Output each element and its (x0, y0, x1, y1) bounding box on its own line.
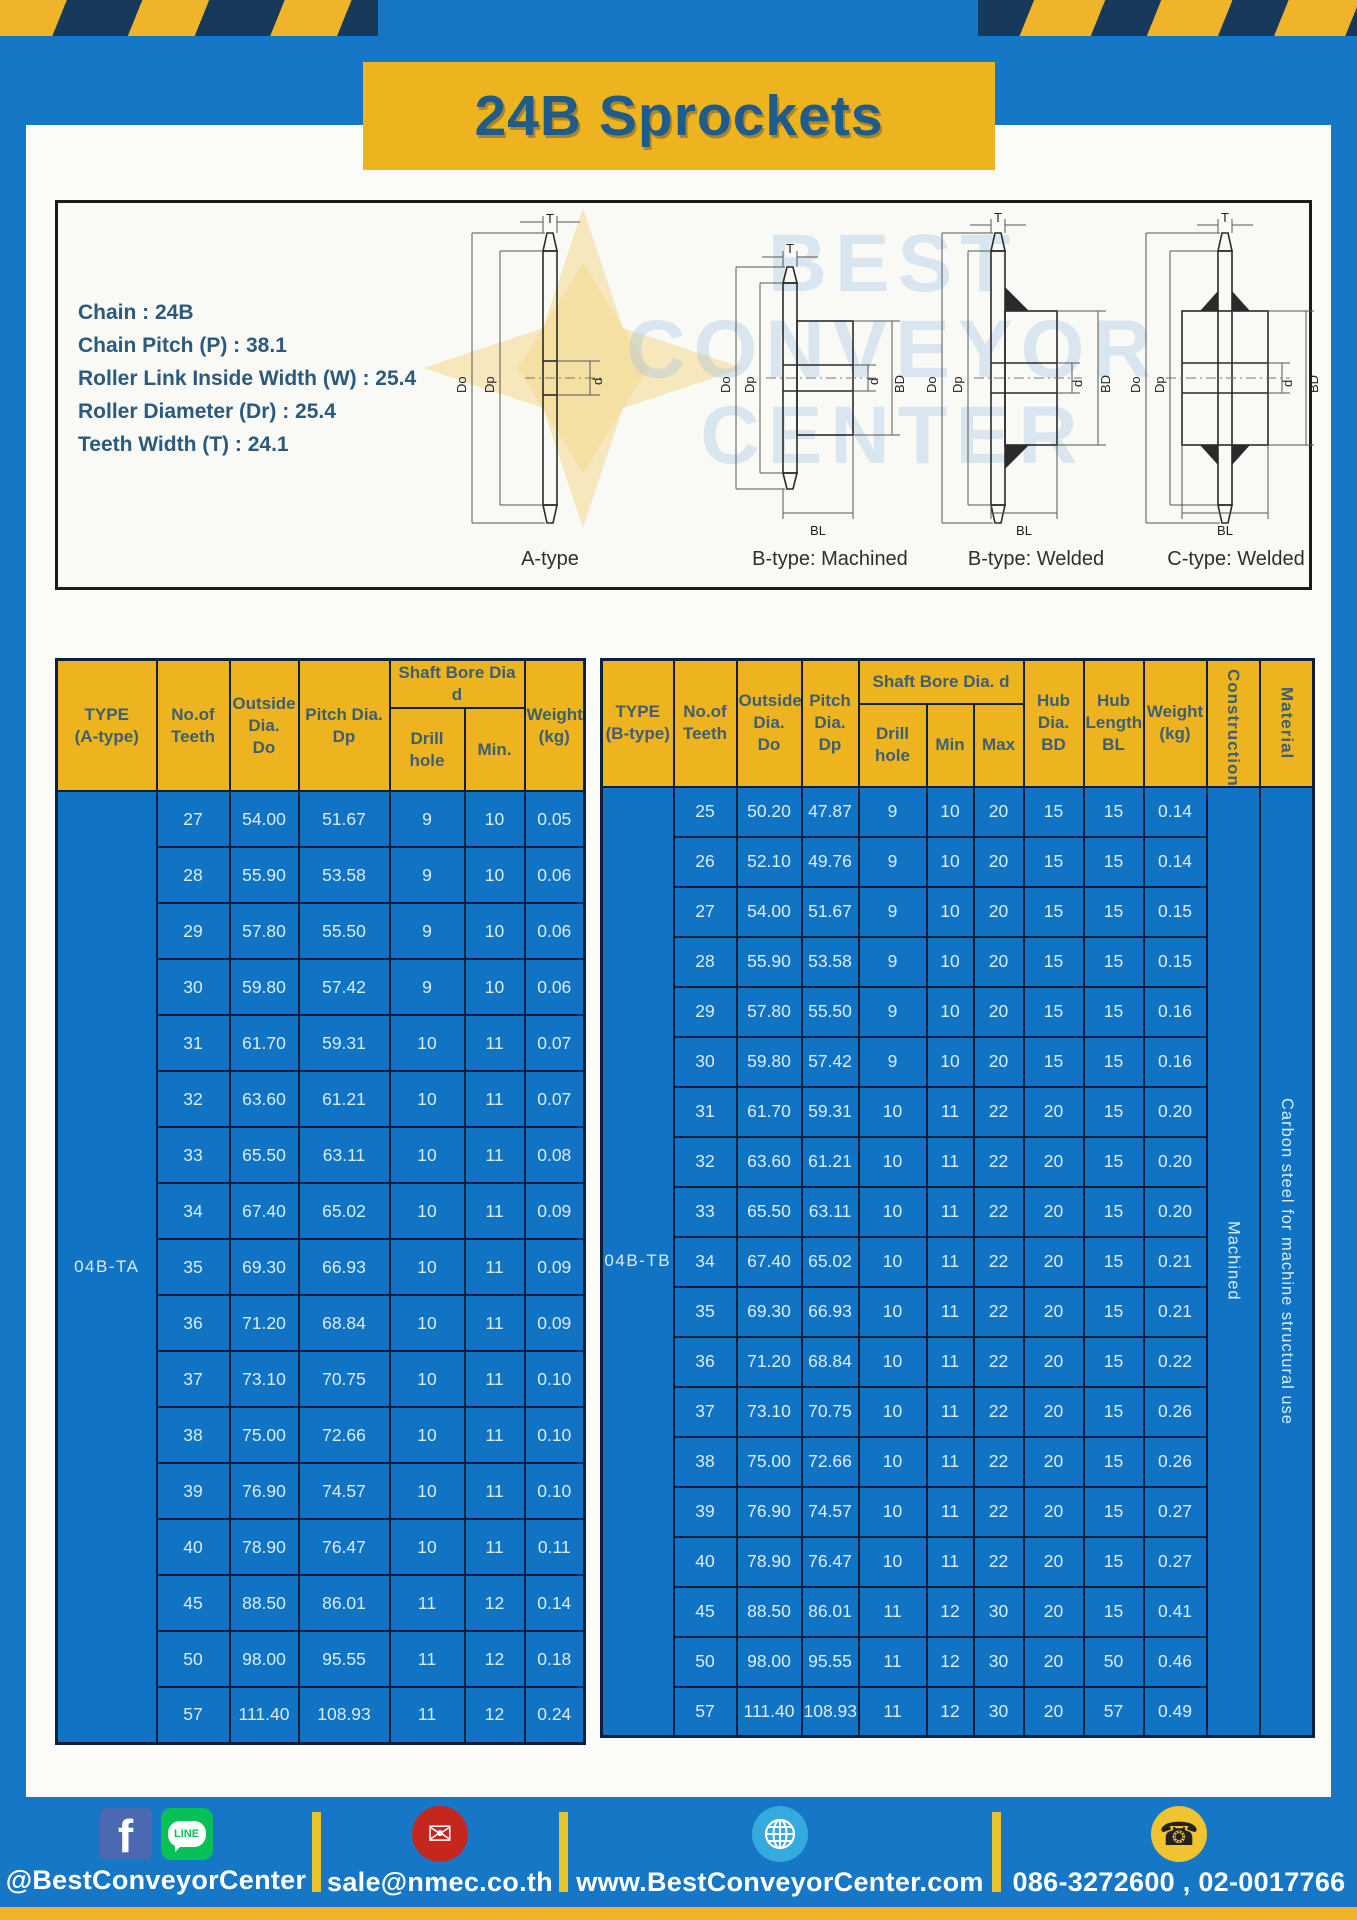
footer-divider (559, 1812, 568, 1892)
table-cell: 45 (674, 1587, 737, 1637)
table-cell: 12 (465, 1631, 525, 1687)
table-cell: 28 (674, 937, 737, 987)
table-cell: 15 (1024, 937, 1084, 987)
table-cell: 0.18 (525, 1631, 585, 1687)
table-cell: 38 (157, 1407, 230, 1463)
table-cell: 67.40 (230, 1183, 299, 1239)
table-cell: 12 (927, 1587, 974, 1637)
table-cell: 0.06 (525, 847, 585, 903)
table-cell: 25 (674, 787, 737, 837)
table-cell: 11 (927, 1387, 974, 1437)
table-cell: 57.80 (230, 903, 299, 959)
table-cell: 0.16 (1144, 987, 1207, 1037)
footer-website: www.BestConveyorCenter.com (568, 1806, 992, 1898)
table-cell: 57.80 (737, 987, 802, 1037)
table-cell: 11 (465, 1295, 525, 1351)
catalog-page: 24B Sprockets BEST CONVEYOR CENTER Chain… (0, 0, 1357, 1920)
table-cell: 50.20 (737, 787, 802, 837)
table-cell: 22 (974, 1437, 1024, 1487)
table-cell: 61.70 (230, 1015, 299, 1071)
table-cell: 0.16 (1144, 1037, 1207, 1087)
svg-text:Dp: Dp (742, 376, 757, 393)
table-cell: 0.20 (1144, 1087, 1207, 1137)
table-cell: 9 (859, 887, 927, 937)
col-header-type: TYPE (A-type) (57, 660, 157, 792)
table-cell: 71.20 (230, 1295, 299, 1351)
table-cell: 55.90 (230, 847, 299, 903)
table-cell: 9 (859, 837, 927, 887)
table-cell: 30 (974, 1687, 1024, 1737)
table-cell: 63.11 (299, 1127, 390, 1183)
caption-b-machined: B-type: Machined (720, 548, 940, 571)
table-cell: 0.21 (1144, 1237, 1207, 1287)
table-cell: 63.60 (230, 1071, 299, 1127)
table-cell: 11 (859, 1637, 927, 1687)
table-cell: 10 (859, 1287, 927, 1337)
table-cell: 75.00 (737, 1437, 802, 1487)
table-cell: 10 (927, 887, 974, 937)
table-cell: 20 (1024, 1487, 1084, 1537)
table-cell: 12 (927, 1637, 974, 1687)
table-cell: 10 (465, 847, 525, 903)
table-cell: 15 (1084, 1287, 1144, 1337)
svg-text:Dp: Dp (482, 376, 497, 393)
phone-icon: ☎ (1151, 1806, 1207, 1862)
table-cell: 11 (390, 1575, 465, 1631)
table-cell: 54.00 (737, 887, 802, 937)
svg-text:T: T (786, 241, 794, 256)
table-cell: 15 (1084, 1237, 1144, 1287)
table-cell: 78.90 (230, 1519, 299, 1575)
sprocket-drawing-b-welded: T Do Dp d BD (926, 213, 1126, 553)
col-header-construction: Construction (1207, 660, 1260, 787)
table-cell: 10 (390, 1071, 465, 1127)
table-cell: 27 (157, 791, 230, 847)
table-cell: 0.49 (1144, 1687, 1207, 1737)
table-cell: 0.06 (525, 903, 585, 959)
table-cell: 72.66 (299, 1407, 390, 1463)
table-cell: 0.22 (1144, 1337, 1207, 1387)
table-cell: 12 (465, 1687, 525, 1743)
svg-text:Do: Do (926, 376, 939, 393)
sprocket-drawing-b-machined: T Do Dp d BD (718, 213, 918, 553)
table-cell: 30 (974, 1587, 1024, 1637)
table-cell: 22 (974, 1487, 1024, 1537)
table-cell: 0.15 (1144, 887, 1207, 937)
col-header-type: TYPE (B-type) (602, 660, 674, 787)
table-cell: 10 (390, 1127, 465, 1183)
table-cell: 55.90 (737, 937, 802, 987)
hazard-stripes-left (0, 0, 378, 36)
table-cell: 11 (859, 1687, 927, 1737)
table-cell: 10 (927, 837, 974, 887)
table-cell: 71.20 (737, 1337, 802, 1387)
table-cell: 20 (974, 887, 1024, 937)
table-cell: 10 (465, 791, 525, 847)
table-cell: 15 (1084, 1537, 1144, 1587)
table-cell: 15 (1084, 1387, 1144, 1437)
table-cell: 31 (674, 1087, 737, 1137)
svg-text:T: T (994, 213, 1002, 225)
spec-teeth-width: Teeth Width (T) : 24.1 (78, 428, 416, 461)
table-cell: 15 (1084, 1487, 1144, 1537)
col-header-min: Min (927, 704, 974, 787)
table-cell: 11 (465, 1183, 525, 1239)
table-cell: 74.57 (802, 1487, 859, 1537)
table-cell: 68.84 (299, 1295, 390, 1351)
table-cell: 36 (157, 1295, 230, 1351)
table-cell: 65.02 (299, 1183, 390, 1239)
footer-social: f LINE @BestConveyorCenter (0, 1808, 312, 1896)
col-header-drill-hole: Drill hole (390, 708, 465, 791)
sprocket-drawing-c-welded: T Do Dp d (1130, 213, 1330, 553)
table-cell: 22 (974, 1337, 1024, 1387)
table-cell: 10 (465, 903, 525, 959)
table-cell: 108.93 (802, 1687, 859, 1737)
table-cell: 11 (390, 1631, 465, 1687)
table-cell: 11 (465, 1127, 525, 1183)
title-banner: 24B Sprockets (363, 62, 995, 170)
col-header-outside-dia: Outside Dia. Do (230, 660, 299, 792)
table-cell: 0.06 (525, 959, 585, 1015)
table-cell: 66.93 (299, 1239, 390, 1295)
caption-c-welded: C-type: Welded (1126, 548, 1346, 571)
table-b-body: 04B-TB2550.2047.879102015150.14MachinedC… (602, 787, 1314, 1737)
footer-phone: ☎ 086-3272600 , 02-0017766 (1001, 1806, 1357, 1898)
svg-text:T: T (546, 213, 554, 226)
table-cell: 11 (927, 1337, 974, 1387)
table-cell: 65.50 (737, 1187, 802, 1237)
facebook-icon: f (100, 1808, 152, 1860)
table-cell: 15 (1024, 887, 1084, 937)
table-cell: 20 (1024, 1587, 1084, 1637)
table-cell: 95.55 (802, 1637, 859, 1687)
col-header-min: Min. (465, 708, 525, 791)
table-cell: 11 (465, 1071, 525, 1127)
svg-text:BD: BD (1306, 375, 1321, 393)
table-cell: 22 (974, 1387, 1024, 1437)
table-cell: 32 (674, 1137, 737, 1187)
table-cell: 55.50 (299, 903, 390, 959)
table-cell: 20 (1024, 1437, 1084, 1487)
table-cell: 30 (674, 1037, 737, 1087)
table-cell: 35 (157, 1239, 230, 1295)
col-header-shaft-bore: Shaft Bore Dia. d (859, 660, 1024, 704)
table-cell: 57 (157, 1687, 230, 1743)
table-cell: 0.14 (525, 1575, 585, 1631)
table-cell: 74.57 (299, 1463, 390, 1519)
table-cell: 51.67 (802, 887, 859, 937)
table-cell: 34 (157, 1183, 230, 1239)
table-cell: 10 (859, 1437, 927, 1487)
table-cell: 63.11 (802, 1187, 859, 1237)
table-cell: 61.21 (802, 1137, 859, 1187)
table-a-type: TYPE (A-type) No.of Teeth Outside Dia. D… (55, 658, 586, 1745)
type-label-a: 04B-TA (57, 791, 157, 1743)
table-cell: 10 (859, 1387, 927, 1437)
table-cell: 9 (390, 847, 465, 903)
table-cell: 36 (674, 1337, 737, 1387)
table-cell: 20 (974, 787, 1024, 837)
table-cell: 22 (974, 1087, 1024, 1137)
table-cell: 12 (465, 1575, 525, 1631)
table-cell: 108.93 (299, 1687, 390, 1743)
table-cell: 72.66 (802, 1437, 859, 1487)
table-cell: 37 (674, 1387, 737, 1437)
table-cell: 9 (859, 787, 927, 837)
table-cell: 88.50 (230, 1575, 299, 1631)
table-cell: 32 (157, 1071, 230, 1127)
globe-icon (752, 1806, 808, 1862)
construction-value: Machined (1207, 787, 1260, 1737)
table-cell: 20 (1024, 1137, 1084, 1187)
col-header-pitch-dia: Pitch Dia. Dp (802, 660, 859, 787)
col-header-max: Max (974, 704, 1024, 787)
table-cell: 11 (927, 1187, 974, 1237)
hazard-stripes-right (978, 0, 1357, 36)
table-cell: 22 (974, 1537, 1024, 1587)
table-cell: 11 (927, 1437, 974, 1487)
table-cell: 61.21 (299, 1071, 390, 1127)
table-cell: 30 (974, 1637, 1024, 1687)
table-cell: 11 (390, 1687, 465, 1743)
table-cell: 20 (1024, 1187, 1084, 1237)
table-cell: 10 (390, 1351, 465, 1407)
svg-text:d: d (1070, 380, 1085, 387)
table-cell: 0.10 (525, 1407, 585, 1463)
table-cell: 52.10 (737, 837, 802, 887)
table-cell: 0.10 (525, 1351, 585, 1407)
caption-a-type: A-type (440, 548, 660, 571)
col-header-drill-hole: Drill hole (859, 704, 927, 787)
svg-text:T: T (1221, 213, 1229, 225)
table-b-header: TYPE (B-type) No.of Teeth Outside Dia. D… (602, 660, 1314, 787)
col-header-teeth: No.of Teeth (157, 660, 230, 792)
table-cell: 15 (1024, 987, 1084, 1037)
caption-b-welded: B-type: Welded (926, 548, 1146, 571)
table-cell: 65.50 (230, 1127, 299, 1183)
table-cell: 66.93 (802, 1287, 859, 1337)
table-cell: 15 (1084, 1037, 1144, 1087)
table-cell: 51.67 (299, 791, 390, 847)
table-cell: 15 (1084, 837, 1144, 887)
table-cell: 10 (927, 987, 974, 1037)
table-cell: 0.26 (1144, 1437, 1207, 1487)
table-cell: 10 (390, 1015, 465, 1071)
svg-text:BL: BL (1016, 523, 1032, 538)
table-cell: 73.10 (737, 1387, 802, 1437)
table-cell: 70.75 (299, 1351, 390, 1407)
table-cell: 0.27 (1144, 1537, 1207, 1587)
svg-text:Do: Do (454, 376, 469, 393)
table-cell: 0.10 (525, 1463, 585, 1519)
table-a-header: TYPE (A-type) No.of Teeth Outside Dia. D… (57, 660, 585, 792)
table-cell: 15 (1084, 1137, 1144, 1187)
table-cell: 11 (465, 1351, 525, 1407)
table-b-type: TYPE (B-type) No.of Teeth Outside Dia. D… (600, 658, 1315, 1738)
table-cell: 10 (927, 937, 974, 987)
table-cell: 0.20 (1144, 1137, 1207, 1187)
table-cell: 50 (157, 1631, 230, 1687)
svg-text:BD: BD (1098, 375, 1113, 393)
col-header-shaft-bore: Shaft Bore Dia d (390, 660, 525, 709)
table-cell: 0.11 (525, 1519, 585, 1575)
table-cell: 0.09 (525, 1239, 585, 1295)
social-handle: @BestConveyorCenter (6, 1865, 307, 1896)
table-cell: 11 (927, 1087, 974, 1137)
table-cell: 22 (974, 1237, 1024, 1287)
table-cell: 15 (1084, 987, 1144, 1037)
table-cell: 15 (1084, 1337, 1144, 1387)
table-cell: 10 (859, 1337, 927, 1387)
table-cell: 10 (859, 1537, 927, 1587)
table-cell: 9 (859, 937, 927, 987)
svg-text:Do: Do (1130, 376, 1143, 393)
table-cell: 9 (390, 903, 465, 959)
table-cell: 54.00 (230, 791, 299, 847)
table-cell: 11 (465, 1407, 525, 1463)
table-cell: 9 (859, 1037, 927, 1087)
bottom-accent-strip (0, 1907, 1357, 1920)
table-cell: 11 (465, 1519, 525, 1575)
table-cell: 12 (927, 1687, 974, 1737)
table-cell: 59.80 (737, 1037, 802, 1087)
table-cell: 11 (465, 1015, 525, 1071)
svg-text:BD: BD (892, 375, 907, 393)
table-cell: 10 (390, 1295, 465, 1351)
table-cell: 57.42 (299, 959, 390, 1015)
table-cell: 111.40 (737, 1687, 802, 1737)
table-cell: 0.24 (525, 1687, 585, 1743)
col-header-pitch-dia: Pitch Dia. Dp (299, 660, 390, 792)
table-cell: 15 (1084, 787, 1144, 837)
table-cell: 49.76 (802, 837, 859, 887)
table-cell: 15 (1084, 887, 1144, 937)
table-cell: 78.90 (737, 1537, 802, 1587)
table-cell: 15 (1084, 937, 1144, 987)
table-cell: 69.30 (737, 1287, 802, 1337)
table-cell: 15 (1084, 1087, 1144, 1137)
table-cell: 57 (1084, 1687, 1144, 1737)
table-cell: 10 (927, 787, 974, 837)
table-cell: 11 (859, 1587, 927, 1637)
table-cell: 27 (674, 887, 737, 937)
table-cell: 76.90 (737, 1487, 802, 1537)
table-cell: 20 (974, 837, 1024, 887)
table-cell: 9 (859, 987, 927, 1037)
table-cell: 11 (927, 1237, 974, 1287)
table-cell: 0.41 (1144, 1587, 1207, 1637)
page-title: 24B Sprockets (474, 83, 883, 149)
table-cell: 11 (927, 1537, 974, 1587)
footer-divider (312, 1812, 321, 1892)
table-cell: 70.75 (802, 1387, 859, 1437)
table-cell: 10 (859, 1237, 927, 1287)
email-address: sale@nmec.co.th (327, 1867, 553, 1898)
table-cell: 20 (1024, 1687, 1084, 1737)
table-cell: 68.84 (802, 1337, 859, 1387)
table-cell: 10 (465, 959, 525, 1015)
table-cell: 47.87 (802, 787, 859, 837)
table-cell: 20 (1024, 1387, 1084, 1437)
svg-text:BL: BL (1217, 523, 1233, 538)
table-cell: 15 (1024, 837, 1084, 887)
table-cell: 20 (1024, 1537, 1084, 1587)
table-cell: 53.58 (802, 937, 859, 987)
table-cell: 20 (1024, 1337, 1084, 1387)
table-cell: 0.26 (1144, 1387, 1207, 1437)
table-row: 04B-TB2550.2047.879102015150.14MachinedC… (602, 787, 1314, 837)
material-value: Carbon steel for machine structural use (1260, 787, 1314, 1737)
table-cell: 40 (674, 1537, 737, 1587)
table-cell: 31 (157, 1015, 230, 1071)
table-cell: 9 (390, 959, 465, 1015)
svg-text:BL: BL (810, 523, 826, 538)
table-cell: 9 (390, 791, 465, 847)
table-cell: 0.20 (1144, 1187, 1207, 1237)
table-cell: 20 (974, 987, 1024, 1037)
table-cell: 22 (974, 1137, 1024, 1187)
table-cell: 57.42 (802, 1037, 859, 1087)
table-cell: 50 (1084, 1637, 1144, 1687)
spec-roller-width: Roller Link Inside Width (W) : 25.4 (78, 362, 416, 395)
table-cell: 0.07 (525, 1071, 585, 1127)
table-cell: 0.14 (1144, 837, 1207, 887)
table-cell: 111.40 (230, 1687, 299, 1743)
table-cell: 22 (974, 1287, 1024, 1337)
table-cell: 15 (1084, 1437, 1144, 1487)
table-cell: 86.01 (802, 1587, 859, 1637)
table-cell: 76.90 (230, 1463, 299, 1519)
table-cell: 86.01 (299, 1575, 390, 1631)
table-cell: 98.00 (737, 1637, 802, 1687)
table-cell: 76.47 (802, 1537, 859, 1587)
table-cell: 98.00 (230, 1631, 299, 1687)
table-cell: 15 (1084, 1187, 1144, 1237)
table-cell: 53.58 (299, 847, 390, 903)
footer-contact-bar: f LINE @BestConveyorCenter ✉ sale@nmec.c… (0, 1797, 1357, 1907)
table-cell: 22 (974, 1187, 1024, 1237)
table-cell: 55.50 (802, 987, 859, 1037)
table-cell: 34 (674, 1237, 737, 1287)
table-cell: 59.80 (230, 959, 299, 1015)
svg-text:d: d (1280, 380, 1295, 387)
table-cell: 0.07 (525, 1015, 585, 1071)
table-cell: 40 (157, 1519, 230, 1575)
spec-roller-dia: Roller Diameter (Dr) : 25.4 (78, 395, 416, 428)
table-cell: 33 (157, 1127, 230, 1183)
table-cell: 76.47 (299, 1519, 390, 1575)
table-cell: 20 (974, 1037, 1024, 1087)
table-cell: 29 (674, 987, 737, 1037)
table-cell: 15 (1024, 1037, 1084, 1087)
col-header-weight: Weight (kg) (525, 660, 585, 792)
table-cell: 35 (674, 1287, 737, 1337)
sprocket-drawing-a-type: T Do Dp d (450, 213, 650, 553)
table-cell: 20 (1024, 1237, 1084, 1287)
table-cell: 30 (157, 959, 230, 1015)
table-cell: 10 (390, 1519, 465, 1575)
table-cell: 59.31 (802, 1087, 859, 1137)
table-cell: 0.09 (525, 1295, 585, 1351)
table-cell: 29 (157, 903, 230, 959)
table-a-body: 04B-TA2754.0051.679100.052855.9053.58910… (57, 791, 585, 1743)
table-cell: 33 (674, 1187, 737, 1237)
line-icon: LINE (161, 1808, 213, 1860)
table-cell: 10 (927, 1037, 974, 1087)
col-header-teeth: No.of Teeth (674, 660, 737, 787)
svg-text:d: d (866, 378, 881, 385)
